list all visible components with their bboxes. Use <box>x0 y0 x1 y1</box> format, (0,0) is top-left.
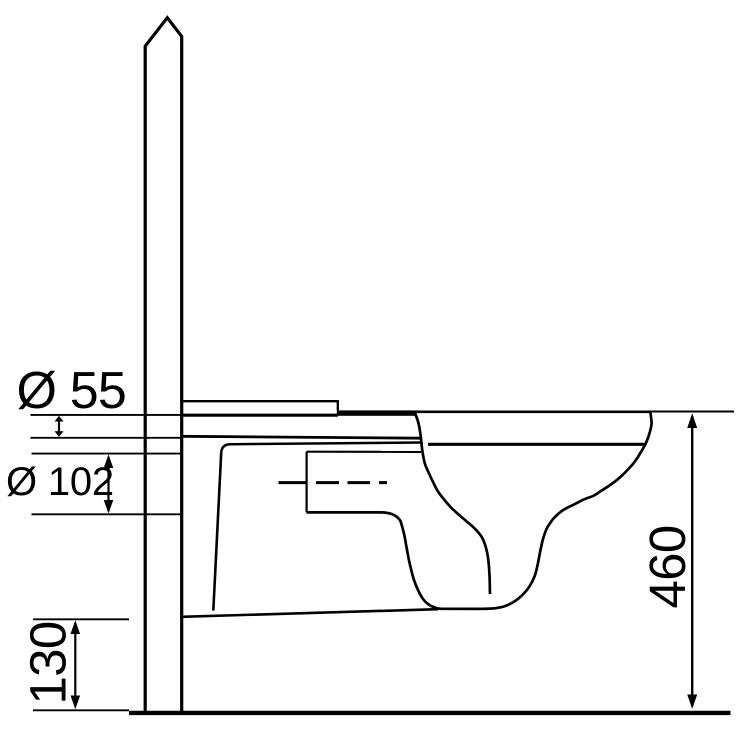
svg-text:460: 460 <box>639 526 696 609</box>
svg-text:130: 130 <box>20 622 77 705</box>
svg-text:Ø 102: Ø 102 <box>6 460 114 504</box>
svg-text:Ø 55: Ø 55 <box>17 362 127 420</box>
